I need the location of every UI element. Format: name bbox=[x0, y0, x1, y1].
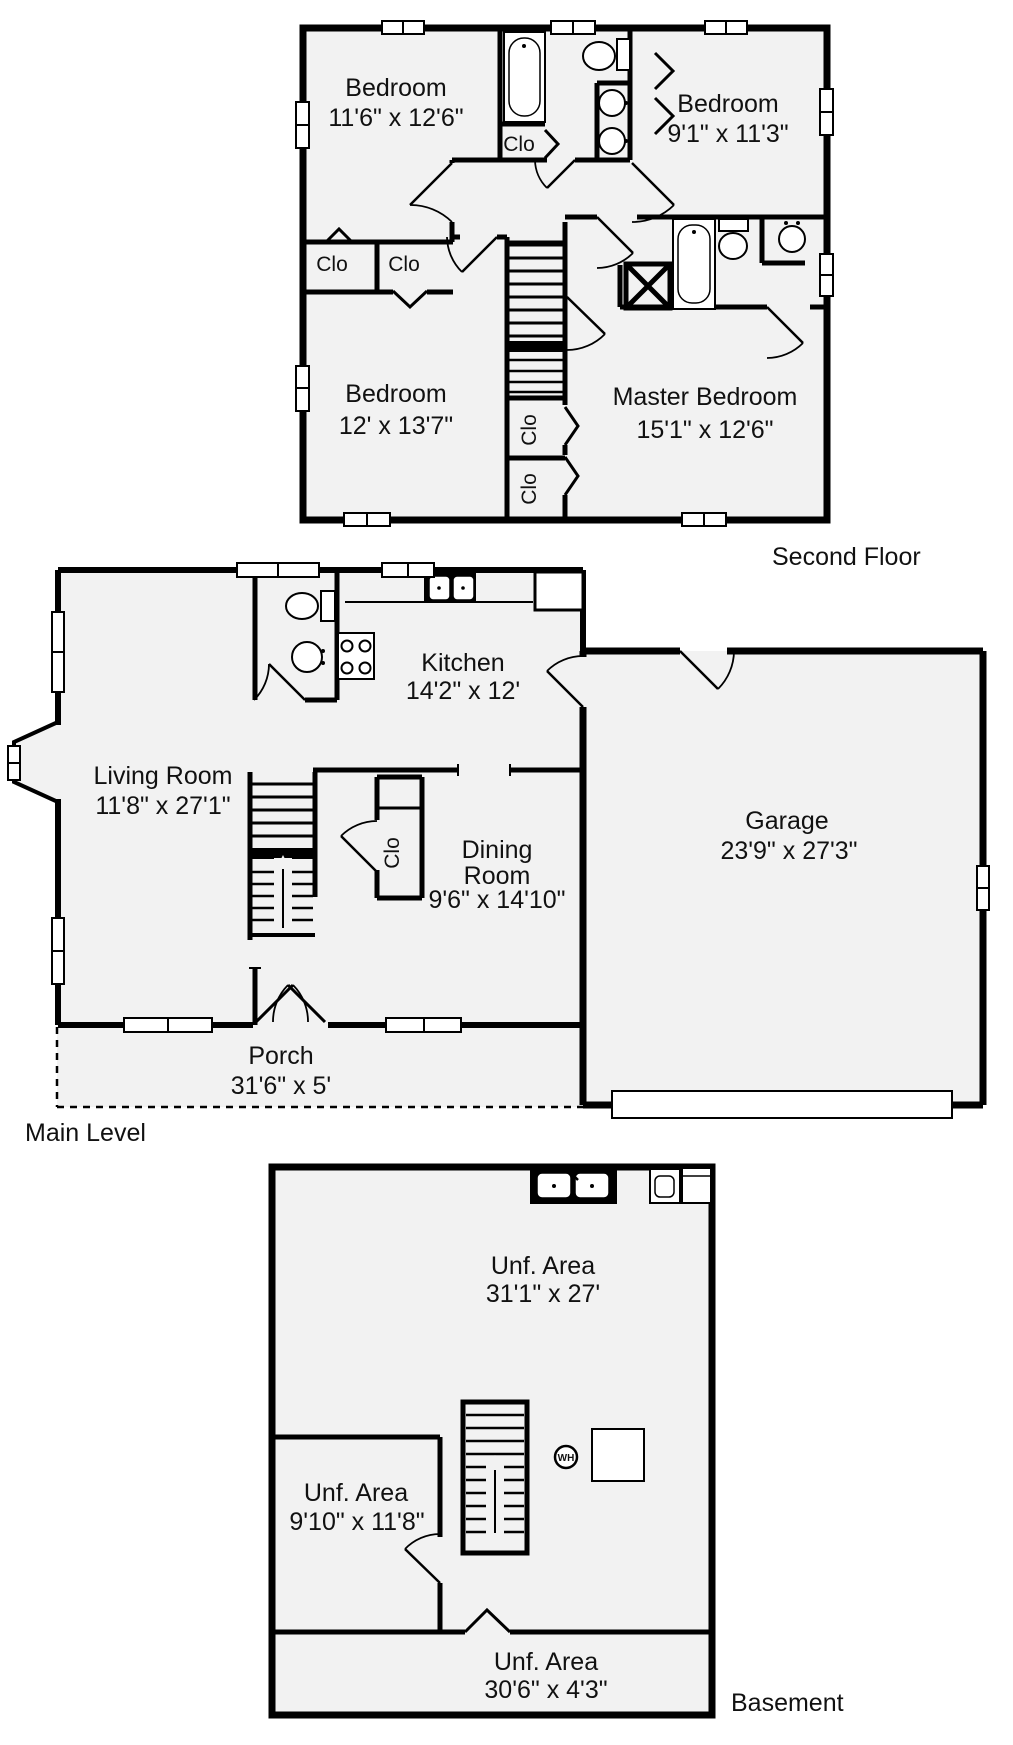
master-bathtub-icon bbox=[673, 219, 715, 309]
room-dims-unf-strip: 30'6" x 4'3" bbox=[484, 1676, 607, 1704]
toilet-icon bbox=[583, 39, 630, 70]
room-label-bedroom-2: Bedroom bbox=[677, 90, 778, 118]
water-heater-icon: WH bbox=[555, 1446, 577, 1468]
second-floor-plan: Bedroom 11'6" x 12'6" Bedroom 9'1" x 11'… bbox=[296, 21, 921, 571]
washer-icon bbox=[650, 1169, 680, 1203]
closet-label: Clo bbox=[388, 253, 420, 276]
room-label-unf-strip: Unf. Area bbox=[494, 1648, 598, 1676]
room-label-dining-1: Dining bbox=[462, 836, 533, 864]
closet-label: Clo bbox=[316, 253, 348, 276]
room-label-bedroom-3: Bedroom bbox=[345, 380, 446, 408]
room-dims-unf-main: 31'1" x 27' bbox=[486, 1280, 600, 1308]
toilet-icon bbox=[286, 591, 335, 621]
refrigerator-icon bbox=[535, 572, 583, 610]
room-label-living: Living Room bbox=[94, 762, 233, 790]
stove-icon bbox=[338, 633, 374, 679]
room-dims-porch: 31'6" x 5' bbox=[231, 1072, 331, 1100]
room-label-master-bedroom: Master Bedroom bbox=[613, 383, 798, 411]
room-dims-garage: 23'9" x 27'3" bbox=[720, 837, 857, 865]
closet-label: Clo bbox=[518, 414, 541, 446]
closet-label: Clo bbox=[518, 473, 541, 505]
room-dims-kitchen: 14'2" x 12' bbox=[406, 677, 520, 705]
master-toilet-icon bbox=[719, 219, 748, 259]
garage-area bbox=[583, 651, 983, 1105]
main-level-plan: Living Room 11'8" x 27'1" Kitchen 14'2" … bbox=[8, 563, 989, 1147]
room-dims-dining: 9'6" x 14'10" bbox=[428, 886, 565, 914]
room-dims-bedroom-3: 12' x 13'7" bbox=[339, 412, 453, 440]
room-dims-unf-room: 9'10" x 11'8" bbox=[289, 1508, 424, 1536]
laundry-sink-icon bbox=[530, 1167, 617, 1204]
garage-door bbox=[612, 1091, 952, 1118]
room-dims-bedroom-1: 11'6" x 12'6" bbox=[328, 104, 463, 132]
floorplan-image: Bedroom 11'6" x 12'6" Bedroom 9'1" x 11'… bbox=[0, 0, 1013, 1745]
floor-label-second: Second Floor bbox=[772, 543, 921, 571]
room-label-kitchen: Kitchen bbox=[421, 649, 504, 677]
floor-label-main: Main Level bbox=[25, 1119, 146, 1147]
room-dims-master-bedroom: 15'1" x 12'6" bbox=[636, 416, 773, 444]
svg-text:WH: WH bbox=[558, 1453, 575, 1464]
room-label-bedroom-1: Bedroom bbox=[345, 74, 446, 102]
room-dims-living: 11'8" x 27'1" bbox=[95, 792, 230, 820]
floor-label-basement: Basement bbox=[731, 1689, 844, 1717]
closet-label: Clo bbox=[503, 133, 535, 156]
room-dims-bedroom-2: 9'1" x 11'3" bbox=[667, 120, 788, 148]
basement-plan: WH Unf. Area 31'1" x 27' Unf. Area 9'10"… bbox=[272, 1167, 844, 1717]
room-label-unf-room: Unf. Area bbox=[304, 1479, 408, 1507]
room-label-garage: Garage bbox=[745, 807, 828, 835]
room-label-porch: Porch bbox=[248, 1042, 313, 1070]
room-label-unf-main: Unf. Area bbox=[491, 1252, 595, 1280]
dryer-icon bbox=[682, 1168, 711, 1203]
floorplan-page: Bedroom 11'6" x 12'6" Bedroom 9'1" x 11'… bbox=[0, 0, 1013, 1745]
furnace-icon bbox=[592, 1429, 644, 1481]
bathtub-icon bbox=[504, 32, 545, 122]
closet-label: Clo bbox=[381, 837, 404, 869]
